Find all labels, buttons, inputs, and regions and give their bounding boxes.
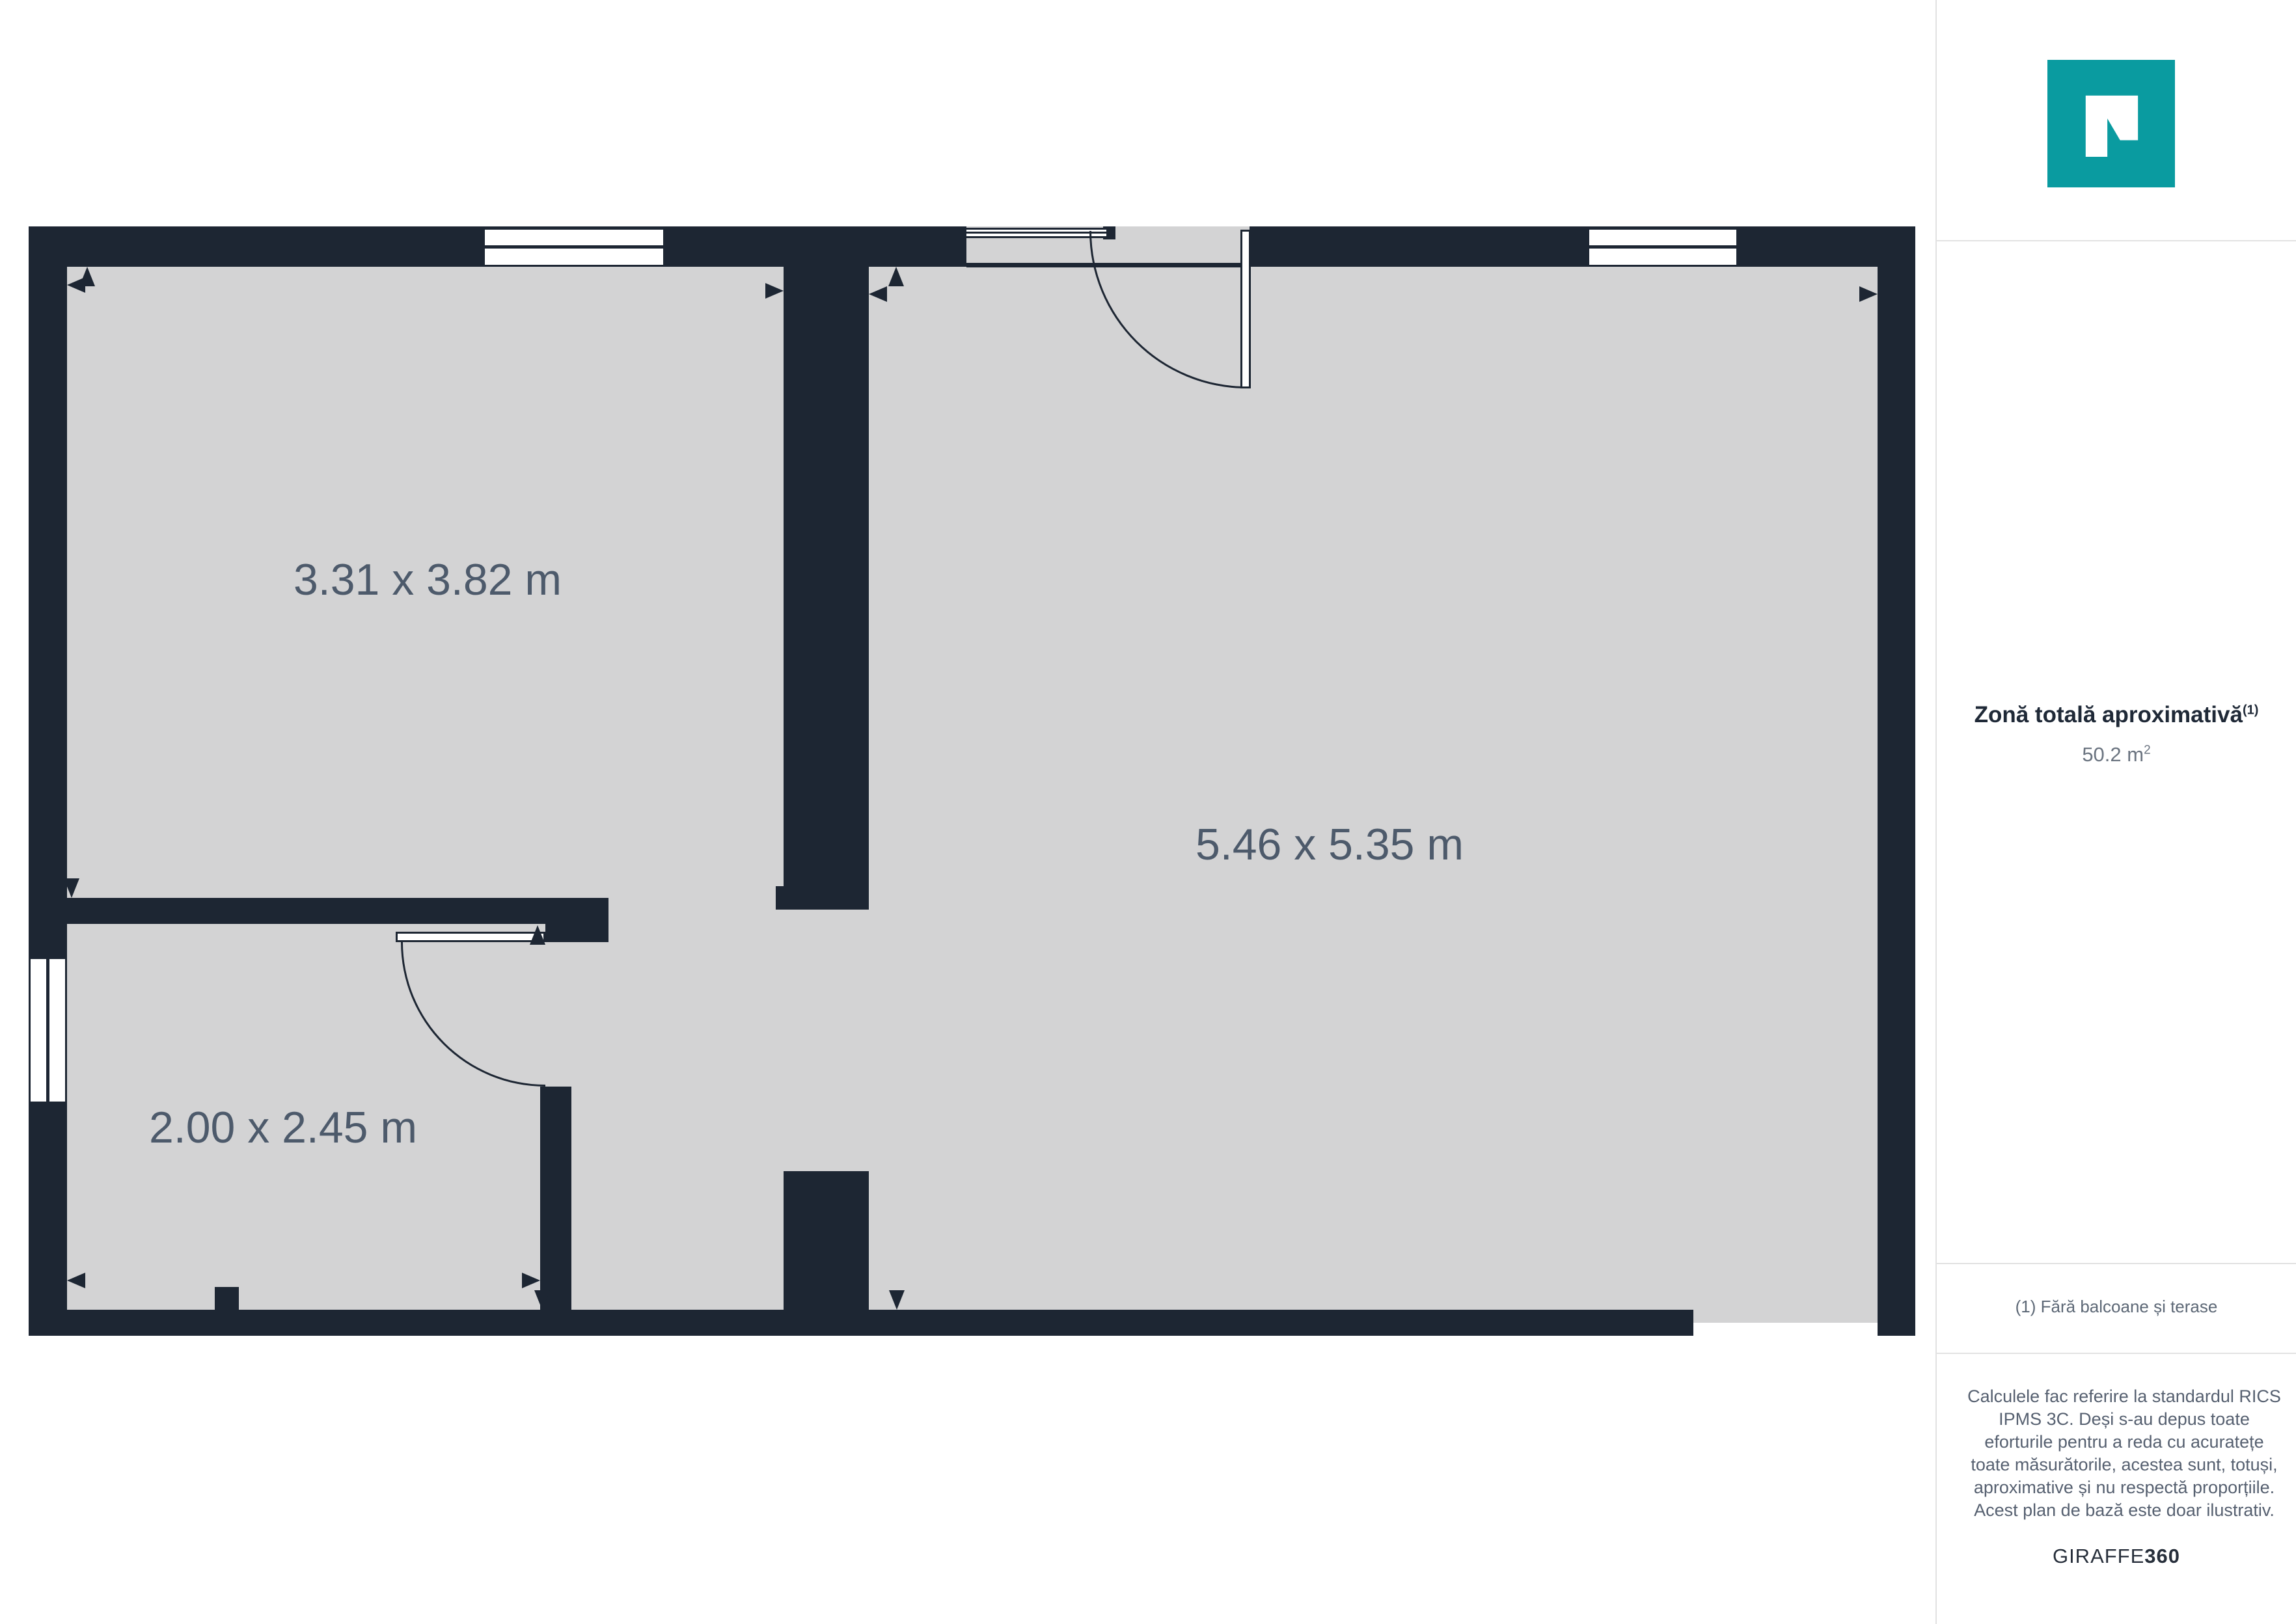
measure-arrow-left-icon: [869, 286, 887, 302]
measure-arrow-left-icon: [67, 1273, 85, 1288]
wall-divider-lower-block: [784, 1171, 869, 1310]
measure-arrow-up-icon: [79, 267, 95, 286]
room-label-bottom-left: 2.00 x 2.45 m: [55, 1103, 511, 1152]
wall-bottom: [29, 1310, 1693, 1336]
room2-door-leaf: [396, 932, 545, 942]
room-label-large-right: 5.46 x 5.35 m: [1102, 820, 1557, 869]
floor-area-bottom-right-extension: [1693, 1310, 1878, 1323]
window-top-left-mullion: [485, 245, 663, 249]
floor-area: [67, 267, 1878, 1310]
wall-room2-bottom-stub: [215, 1287, 239, 1310]
wall-room2-doorframe-top: [545, 924, 608, 942]
brand-regular: GIRAFFE: [2053, 1545, 2144, 1567]
measure-arrow-down-icon: [64, 878, 79, 898]
total-area-value-text: 50.2 m: [2082, 743, 2144, 766]
wall-left: [29, 226, 67, 1336]
wall-divider-notch: [776, 886, 784, 910]
measure-arrow-up-icon: [530, 925, 545, 945]
floor-plan: 3.31 x 3.82 m 5.46 x 5.35 m 2.00 x 2.45 …: [0, 0, 1936, 1624]
total-area-value-superscript: 2: [2144, 744, 2151, 757]
measure-arrow-right-icon: [1859, 286, 1878, 302]
total-area-title: Zonă totală aproximativă(1): [1937, 702, 2296, 728]
sidebar-left-border: [1935, 0, 1937, 1624]
wall-right: [1878, 226, 1915, 1336]
sidebar-divider: [1937, 240, 2296, 241]
total-area-value: 50.2 m2: [1937, 743, 2296, 766]
sidebar-divider: [1937, 1263, 2296, 1264]
sidebar-divider: [1937, 1353, 2296, 1354]
entrance-sidelight-window-mullion: [966, 232, 1106, 234]
giraffe360-logo-icon: [2047, 60, 2176, 187]
total-area-title-superscript: (1): [2243, 703, 2258, 717]
wall-room1-bottom: [29, 898, 608, 924]
footnote: (1) Fără balcoane și terase: [1937, 1297, 2296, 1317]
window-top-right-mullion: [1589, 245, 1736, 249]
disclaimer-text: Calculele fac referire la standardul RIC…: [1963, 1385, 2286, 1522]
measure-arrow-up-icon: [888, 267, 904, 286]
measure-arrow-down-icon: [534, 1290, 550, 1310]
brand-giraffe360: GIRAFFE360: [1937, 1545, 2296, 1568]
brand-bold: 360: [2144, 1545, 2180, 1567]
total-area-title-text: Zonă totală aproximativă: [1975, 702, 2243, 727]
measure-arrow-down-icon: [889, 1290, 905, 1310]
giraffe360-logo: [2047, 60, 2176, 187]
window-left-wall-mullion: [46, 959, 49, 1102]
measure-arrow-right-icon: [765, 283, 784, 299]
wall-room2-right-stub: [540, 1087, 571, 1310]
entrance-door-leaf: [1240, 230, 1251, 388]
room-label-top-left: 3.31 x 3.82 m: [200, 555, 655, 604]
measure-arrow-right-icon: [522, 1273, 540, 1288]
wall-divider-vertical: [784, 267, 869, 910]
